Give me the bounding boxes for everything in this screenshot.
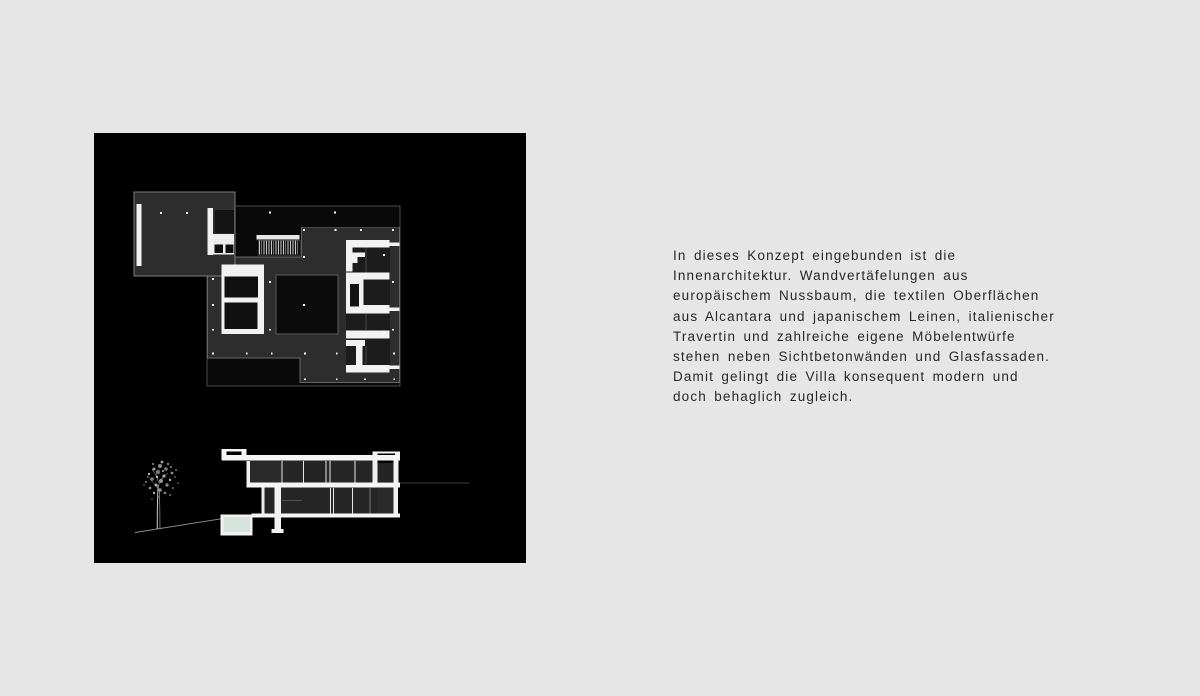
pool-water (224, 517, 251, 532)
description-line: In dieses Konzept eingebunden ist die (673, 246, 1055, 266)
description-line: Travertin und zahlreiche eigene Möbelent… (673, 327, 1055, 347)
description-line: Damit gelingt die Villa konsequent moder… (673, 367, 1055, 387)
floor-plan (134, 192, 400, 386)
project-description: In dieses Konzept eingebunden ist die In… (673, 246, 1055, 408)
page-background: In dieses Konzept eingebunden ist die In… (0, 0, 1200, 696)
description-line: doch behaglich zugleich. (673, 387, 1055, 407)
tree-illustration (143, 461, 178, 529)
description-line: aus Alcantara und japanischem Leinen, it… (673, 307, 1055, 327)
project-image-panel (94, 133, 526, 563)
architecture-drawing (94, 133, 526, 563)
description-line: Innenarchitektur. Wandvertäfelungen aus (673, 266, 1055, 286)
pool (221, 514, 253, 535)
description-line: stehen neben Sichtbetonwänden und Glasfa… (673, 347, 1055, 367)
description-line: europäischem Nussbaum, die textilen Ober… (673, 286, 1055, 306)
building-section (135, 449, 470, 536)
